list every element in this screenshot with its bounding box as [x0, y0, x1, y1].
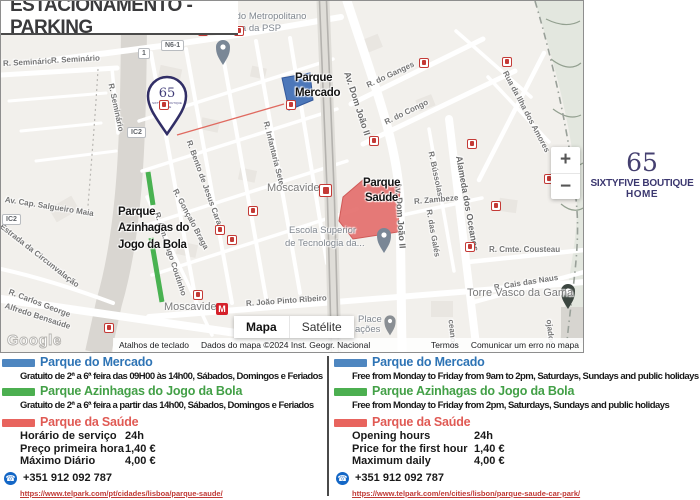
transit-stop-icon [419, 58, 429, 68]
row-value: 4,00 € [474, 455, 700, 468]
zoom-out-button[interactable]: − [551, 174, 580, 200]
transit-stop-icon [467, 139, 477, 149]
azinhagas-title-pt: Parque Azinhagas do Jogo da Bola [40, 384, 242, 399]
phone-row-pt: ☎ +351 912 092 787 [4, 472, 326, 485]
google-map-embed[interactable]: 65 SIXTYFIVE BOUTIQUE HOME R. SeminárioR… [0, 0, 584, 353]
row-label: Preço primeira hora [20, 443, 125, 456]
transit-stop-icon [227, 235, 237, 245]
phone-number-pt: +351 912 092 787 [23, 472, 112, 484]
map-button[interactable]: Mapa [234, 316, 290, 338]
transit-stop-icon [104, 323, 114, 333]
attribution-bar: Atalhos de teclado Dados do mapa ©2024 I… [113, 338, 584, 352]
row-value: 24h [125, 430, 326, 443]
legend-portuguese: Parque do Mercado Gratuito de 2ª a 6ª fe… [2, 355, 326, 498]
saude-title-pt: Parque da Saúde [40, 415, 138, 430]
train-station-icon[interactable] [319, 184, 332, 197]
transit-stop-icon [286, 100, 296, 110]
map-type-control: Mapa Satélite [234, 316, 354, 338]
page: 65 SIXTYFIVE BOUTIQUE HOME R. SeminárioR… [0, 0, 700, 500]
row-label: Maximum daily [352, 455, 474, 468]
mercado-title-en: Parque do Mercado [372, 355, 485, 370]
azinhagas-desc-pt: Gratuito de 2ª a 6ª feira a partir das 1… [20, 399, 326, 412]
row-value: 1,40 € [474, 443, 700, 456]
row-value: 1,40 € [125, 443, 326, 456]
row-label: Horário de serviço [20, 430, 125, 443]
transit-stop-icon [502, 57, 512, 67]
report-error-link[interactable]: Comunicar um erro no mapa [471, 340, 579, 350]
phone-row-en: ☎ +351 912 092 787 [336, 472, 700, 485]
terms-link[interactable]: Termos [431, 340, 459, 350]
title-box: ESTACIONAMENTO - PARKING [1, 1, 238, 35]
map-icons-layer: M [1, 1, 583, 352]
row-value: 24h [474, 430, 700, 443]
saude-info-en: Opening hours24h Price for the first hou… [352, 430, 700, 468]
legend-english: Parque do Mercado Free from Monday to Fr… [334, 355, 700, 498]
row-label: Máximo Diário [20, 455, 125, 468]
page-title: ESTACIONAMENTO - PARKING [1, 0, 238, 39]
saude-title-en: Parque da Saúde [372, 415, 470, 430]
saude-info-pt: Horário de serviço24h Preço primeira hor… [20, 430, 326, 468]
legend-divider [327, 356, 329, 496]
row-label: Opening hours [352, 430, 474, 443]
mercado-desc-pt: Gratuito de 2ª a 6ª feira das 09H00 às 1… [20, 370, 326, 383]
mercado-desc-en: Free from Monday to Friday from 9am to 2… [352, 370, 700, 383]
transit-stop-icon [491, 201, 501, 211]
row-label: Price for the first hour [352, 443, 474, 456]
transit-stop-icon [215, 225, 225, 235]
brand-name: SIXTYFIVE BOUTIQUE [586, 178, 698, 189]
saude-swatch-icon [334, 419, 367, 427]
azinhagas-swatch-icon [2, 388, 35, 396]
keyboard-shortcuts-link[interactable]: Atalhos de teclado [119, 340, 189, 350]
azinhagas-desc-en: Free from Monday to Friday from 2pm, Sat… [352, 399, 700, 412]
telpark-link-pt[interactable]: https://www.telpark.com/pt/cidades/lisbo… [20, 489, 326, 498]
saude-swatch-icon [2, 419, 35, 427]
brand-home: HOME [586, 189, 698, 200]
zoom-control: + − [551, 147, 580, 199]
phone-number-en: +351 912 092 787 [355, 472, 444, 484]
zoom-in-button[interactable]: + [551, 147, 580, 174]
brand-panel: 65 SIXTYFIVE BOUTIQUE HOME [586, 150, 698, 200]
map-data-text: Dados do mapa ©2024 Inst. Geogr. Naciona… [201, 340, 370, 350]
satellite-button[interactable]: Satélite [290, 316, 354, 338]
azinhagas-swatch-icon [334, 388, 367, 396]
mercado-swatch-icon [334, 359, 367, 367]
row-value: 4,00 € [125, 455, 326, 468]
transit-stop-icon [369, 136, 379, 146]
transit-stop-icon [465, 242, 475, 252]
phone-icon: ☎ [336, 472, 349, 485]
azinhagas-title-en: Parque Azinhagas do Jogo da Bola [372, 384, 574, 399]
transit-stop-icon [159, 100, 169, 110]
mercado-swatch-icon [2, 359, 35, 367]
mercado-title-pt: Parque do Mercado [40, 355, 153, 370]
brand-number: 65 [586, 150, 698, 176]
transit-stop-icon [193, 290, 203, 300]
google-logo[interactable]: Google [7, 332, 62, 349]
telpark-link-en[interactable]: https://www.telpark.com/en/cities/lisbon… [352, 489, 700, 498]
transit-stop-icon [248, 206, 258, 216]
metro-station-icon[interactable]: M [216, 303, 228, 315]
phone-icon: ☎ [4, 472, 17, 485]
